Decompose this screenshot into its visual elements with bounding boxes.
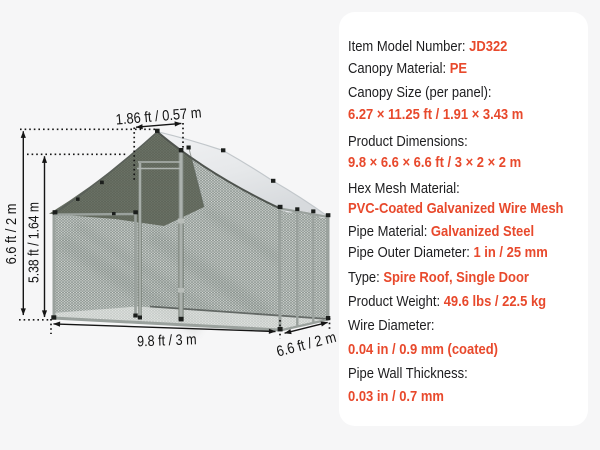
svg-text:9.8 ft / 3 m: 9.8 ft / 3 m (137, 330, 197, 349)
svg-text:6.6 ft / 2 m: 6.6 ft / 2 m (275, 328, 338, 360)
svg-text:6.6 ft / 2 m: 6.6 ft / 2 m (2, 204, 19, 265)
svg-text:1.86 ft / 0.57 m: 1.86 ft / 0.57 m (115, 104, 202, 128)
svg-text:5.38 ft / 1.64 m: 5.38 ft / 1.64 m (25, 202, 41, 283)
